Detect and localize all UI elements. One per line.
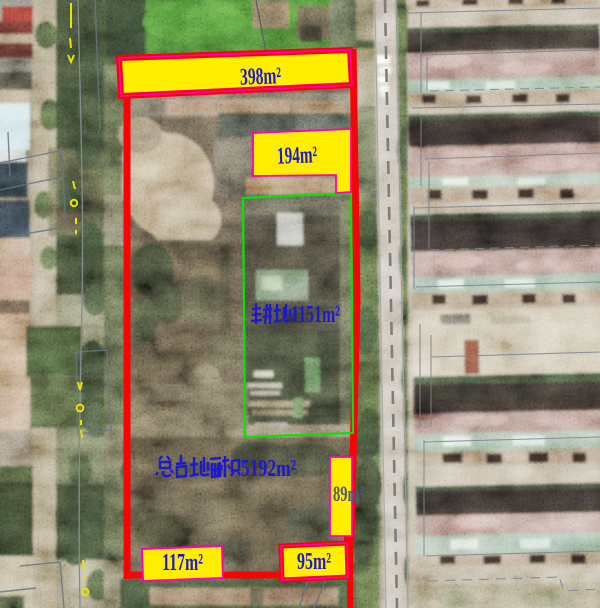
svg-text:5192m²: 5192m² xyxy=(241,456,296,482)
svg-text:117m²: 117m² xyxy=(162,550,203,576)
svg-text:89m²: 89m² xyxy=(333,481,364,506)
svg-text:194m²: 194m² xyxy=(277,142,318,169)
svg-text:95m²: 95m² xyxy=(297,549,331,575)
svg-text:1151m²: 1151m² xyxy=(291,302,340,328)
svg-text:398m²: 398m² xyxy=(240,63,282,90)
